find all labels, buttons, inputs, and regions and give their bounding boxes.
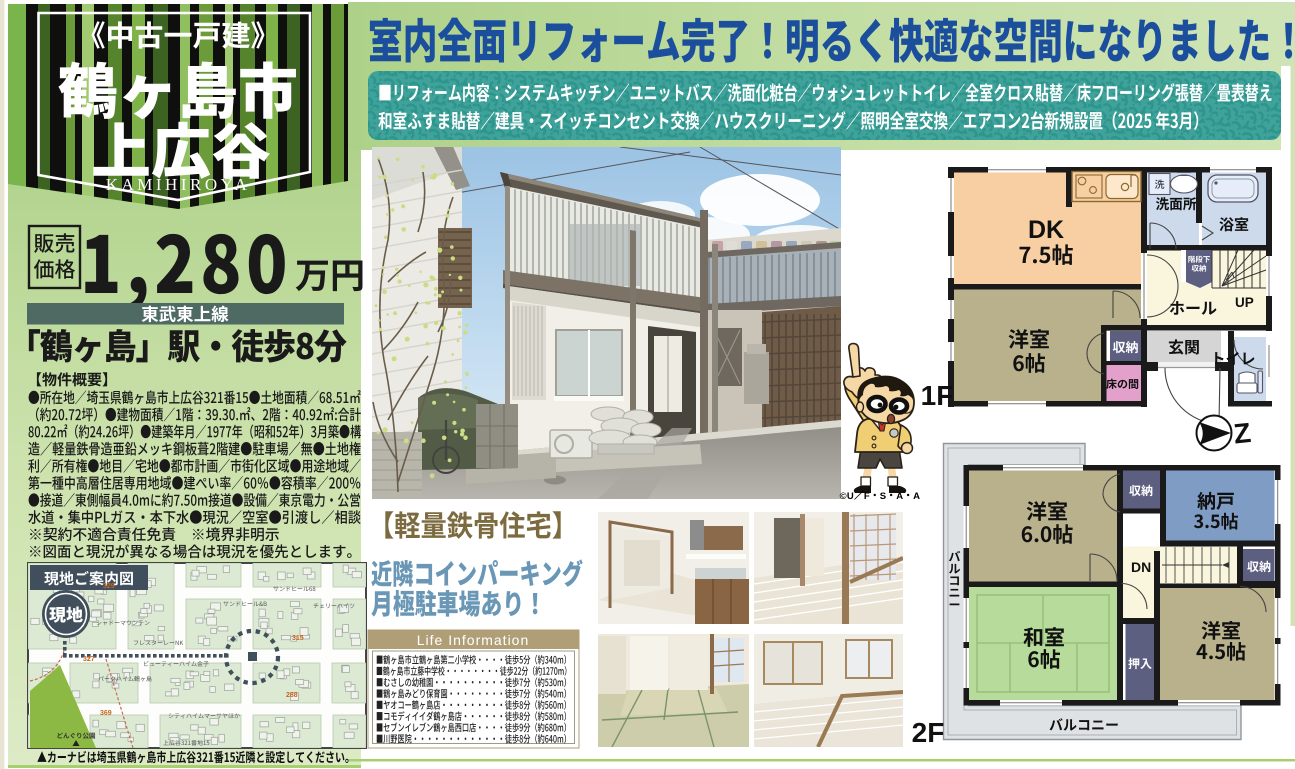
- svg-text:369: 369: [100, 710, 112, 717]
- svg-text:DK: DK: [1028, 216, 1064, 244]
- svg-text:327: 327: [83, 656, 95, 663]
- svg-text:2F: 2F: [912, 717, 945, 748]
- svg-text:1F: 1F: [921, 380, 954, 411]
- svg-text:Life Information: Life Information: [417, 632, 530, 648]
- svg-text:288: 288: [286, 692, 298, 699]
- svg-text:315: 315: [292, 635, 304, 642]
- svg-text:©U／F・S・A・A: ©U／F・S・A・A: [840, 490, 921, 502]
- svg-text:UP: UP: [1235, 295, 1254, 310]
- svg-text:KAMIHIROYA: KAMIHIROYA: [106, 175, 251, 194]
- svg-text:Z: Z: [1232, 417, 1252, 450]
- svg-text:DN: DN: [1131, 559, 1151, 575]
- svg-text:329: 329: [103, 583, 115, 590]
